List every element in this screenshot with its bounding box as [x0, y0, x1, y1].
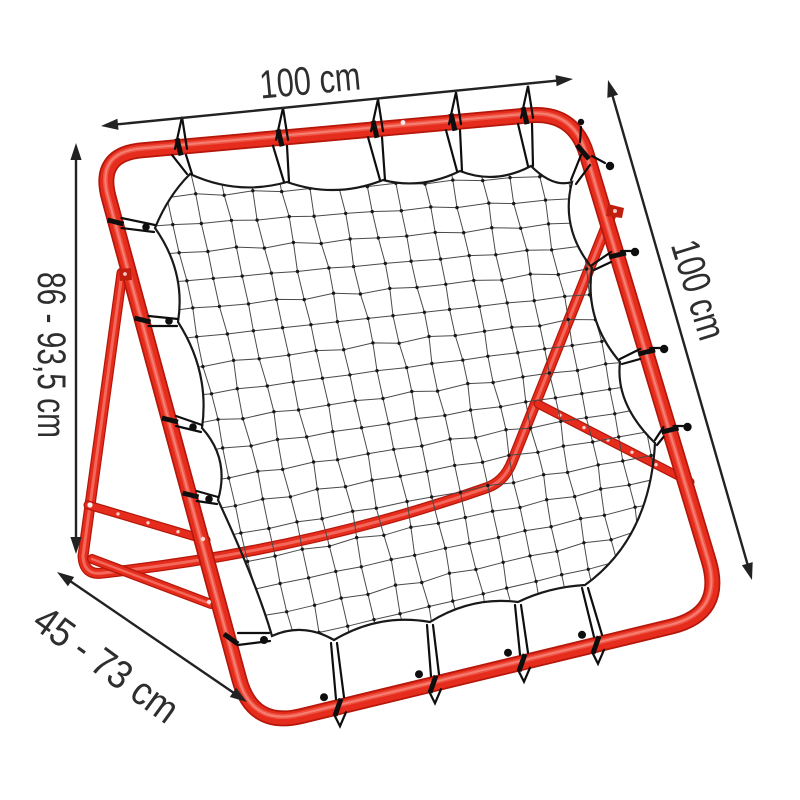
svg-text:86 - 93,5 cm: 86 - 93,5 cm [29, 272, 73, 438]
svg-text:45 - 73 cm: 45 - 73 cm [25, 598, 187, 732]
svg-text:100 cm: 100 cm [662, 235, 734, 345]
svg-text:100 cm: 100 cm [258, 54, 363, 107]
